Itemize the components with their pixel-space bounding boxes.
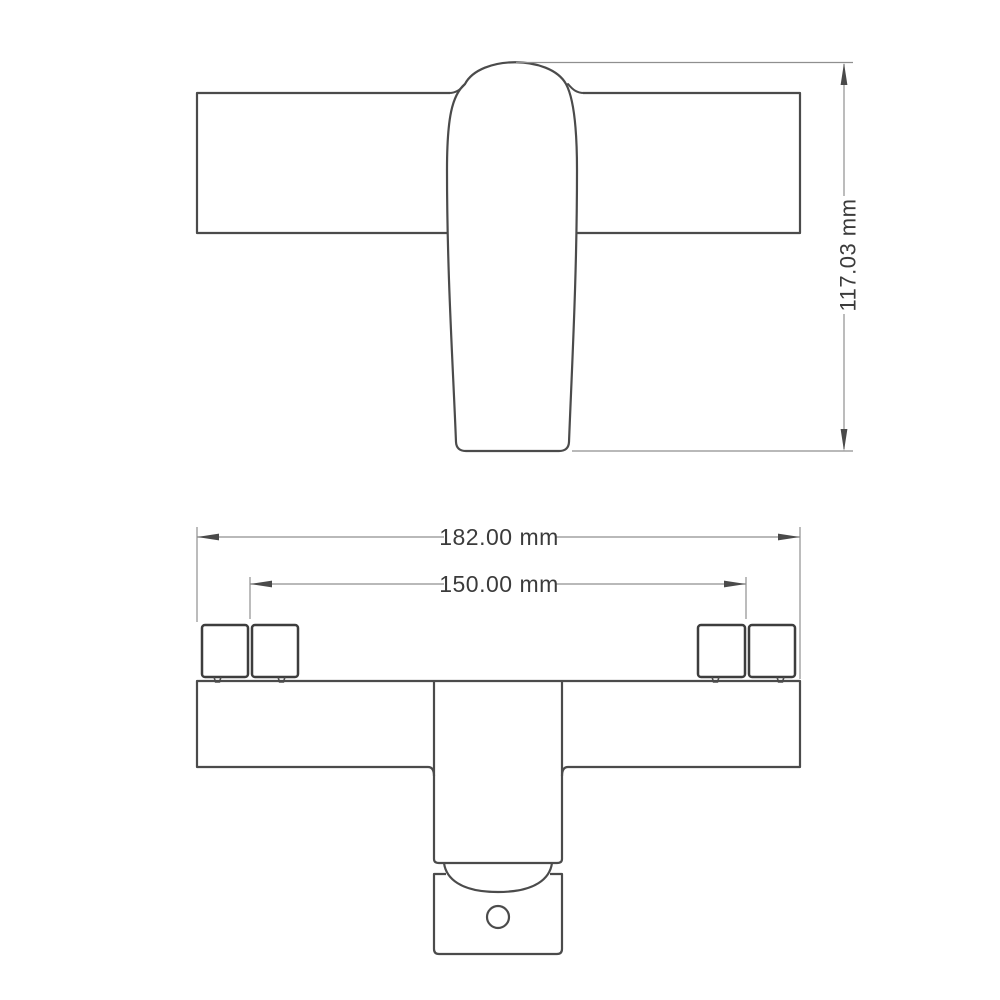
width-arrow-right-icon <box>778 534 800 541</box>
connector-spacing-dimension-label: 150.00 mm <box>439 571 559 597</box>
overall-width-dimension: 182.00 mm <box>197 524 800 679</box>
bottom-body-outline <box>197 681 800 776</box>
connector-spacing-dimension: 150.00 mm <box>250 571 746 619</box>
front-view-drawing <box>197 62 800 451</box>
height-arrow-down-icon <box>841 429 848 451</box>
left-connector-nut-1 <box>202 625 248 677</box>
valve-column-outline <box>434 681 562 863</box>
bottom-view-drawing <box>197 625 800 954</box>
front-handle-outline <box>447 62 577 451</box>
right-connector-nut-2 <box>749 625 795 677</box>
spacing-arrow-left-icon <box>250 581 272 588</box>
technical-drawing: 117.03 mm 182.00 mm 150.00 mm <box>0 0 1000 1000</box>
width-arrow-left-icon <box>197 534 219 541</box>
front-body-right-outline <box>575 93 800 233</box>
spout-box-outline <box>434 874 562 954</box>
right-inlet-connector <box>698 625 795 682</box>
height-arrow-up-icon <box>841 63 848 85</box>
spacing-arrow-right-icon <box>724 581 746 588</box>
right-connector-nut-1 <box>698 625 745 677</box>
height-dimension-label: 117.03 mm <box>836 199 861 312</box>
front-body-left-outline <box>197 93 450 233</box>
left-inlet-connector <box>202 625 298 682</box>
drawing-canvas: 117.03 mm 182.00 mm 150.00 mm <box>0 0 1000 1000</box>
aerator-hole <box>487 906 509 928</box>
left-connector-nut-2 <box>252 625 298 677</box>
spout-neck-arc <box>444 863 552 892</box>
overall-width-dimension-label: 182.00 mm <box>439 524 559 550</box>
